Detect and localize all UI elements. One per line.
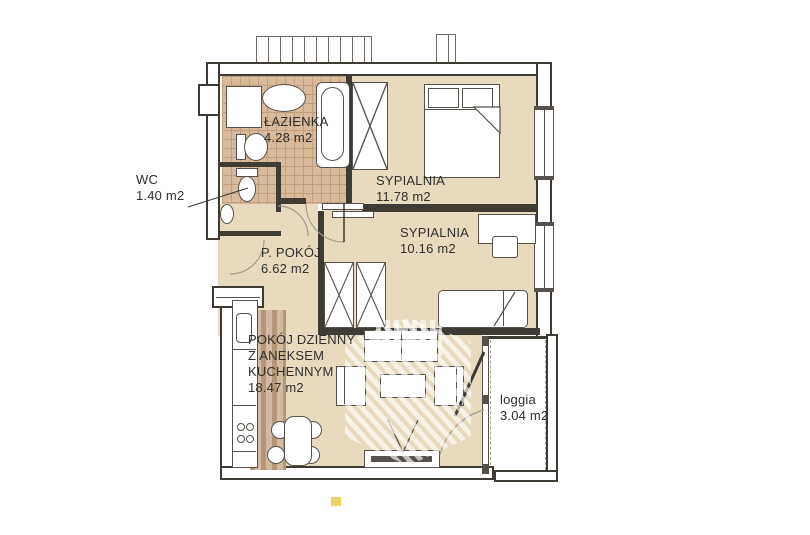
- room-label-p-pokoj: P. POKÓJ 6.62 m2: [261, 245, 321, 277]
- wall-between-bedrooms: [362, 204, 538, 212]
- sliding-door-leaf-a: [322, 203, 364, 210]
- chair-icon: [492, 236, 518, 258]
- room-label-pokoj-dzienny: POKÓJ DZIENNY Z ANEKSEM KUCHENNYM 18.47 …: [248, 332, 355, 396]
- room-label-lazienka: ŁAZIENKA 4.28 m2: [264, 114, 328, 146]
- loggia-outer-wall-bottom: [494, 470, 558, 482]
- wall-wc-right: [276, 162, 281, 212]
- wardrobe-icon: [352, 82, 388, 170]
- dining-chair-icon: [267, 446, 285, 464]
- washbasin-icon: [262, 84, 306, 112]
- single-bed-icon: [438, 290, 528, 328]
- washbasin-icon: [220, 204, 234, 224]
- washing-machine-icon: [226, 86, 262, 128]
- watermark-logo-top: [372, 320, 442, 356]
- wall-lazienka-bottom: [276, 198, 306, 204]
- accent-dot: [331, 497, 341, 506]
- wall-wc-top: [218, 162, 280, 167]
- dining-table-icon: [284, 416, 312, 466]
- double-bed-icon: [424, 84, 500, 178]
- loggia-glass-wall: [482, 336, 489, 474]
- wall-hatch-small: [436, 34, 456, 64]
- cooktop-icon: [237, 435, 245, 443]
- toilet-bowl-icon: [238, 176, 256, 202]
- wall-right: [536, 62, 552, 338]
- cooktop-icon: [237, 423, 245, 431]
- wardrobe-icon: [324, 262, 354, 328]
- wall-wc-bottom: [218, 231, 281, 236]
- loggia-top-line: [488, 336, 548, 339]
- room-label-wc: WC 1.40 m2: [136, 172, 184, 204]
- room-label-sypialnia-1: SYPIALNIA 11.78 m2: [376, 173, 445, 205]
- window-left-glass-line: [216, 297, 260, 298]
- wall-top: [206, 62, 552, 76]
- room-label-loggia: loggia 3.04 m2: [500, 392, 548, 424]
- sliding-door-leaf-b: [332, 211, 374, 218]
- shaft-box: [198, 84, 220, 116]
- cooktop-icon: [246, 423, 254, 431]
- cooktop-icon: [246, 435, 254, 443]
- window-sypialnia-1: [534, 106, 554, 180]
- room-label-sypialnia-2: SYPIALNIA 10.16 m2: [400, 225, 469, 257]
- pillow-icon: [428, 88, 459, 108]
- wardrobe-icon: [356, 262, 386, 328]
- floor-plan: ŁAZIENKA 4.28 m2 WC 1.40 m2 SYPIALNIA 11…: [0, 0, 810, 535]
- pillow-icon: [462, 88, 493, 108]
- window-sypialnia-2: [534, 222, 554, 292]
